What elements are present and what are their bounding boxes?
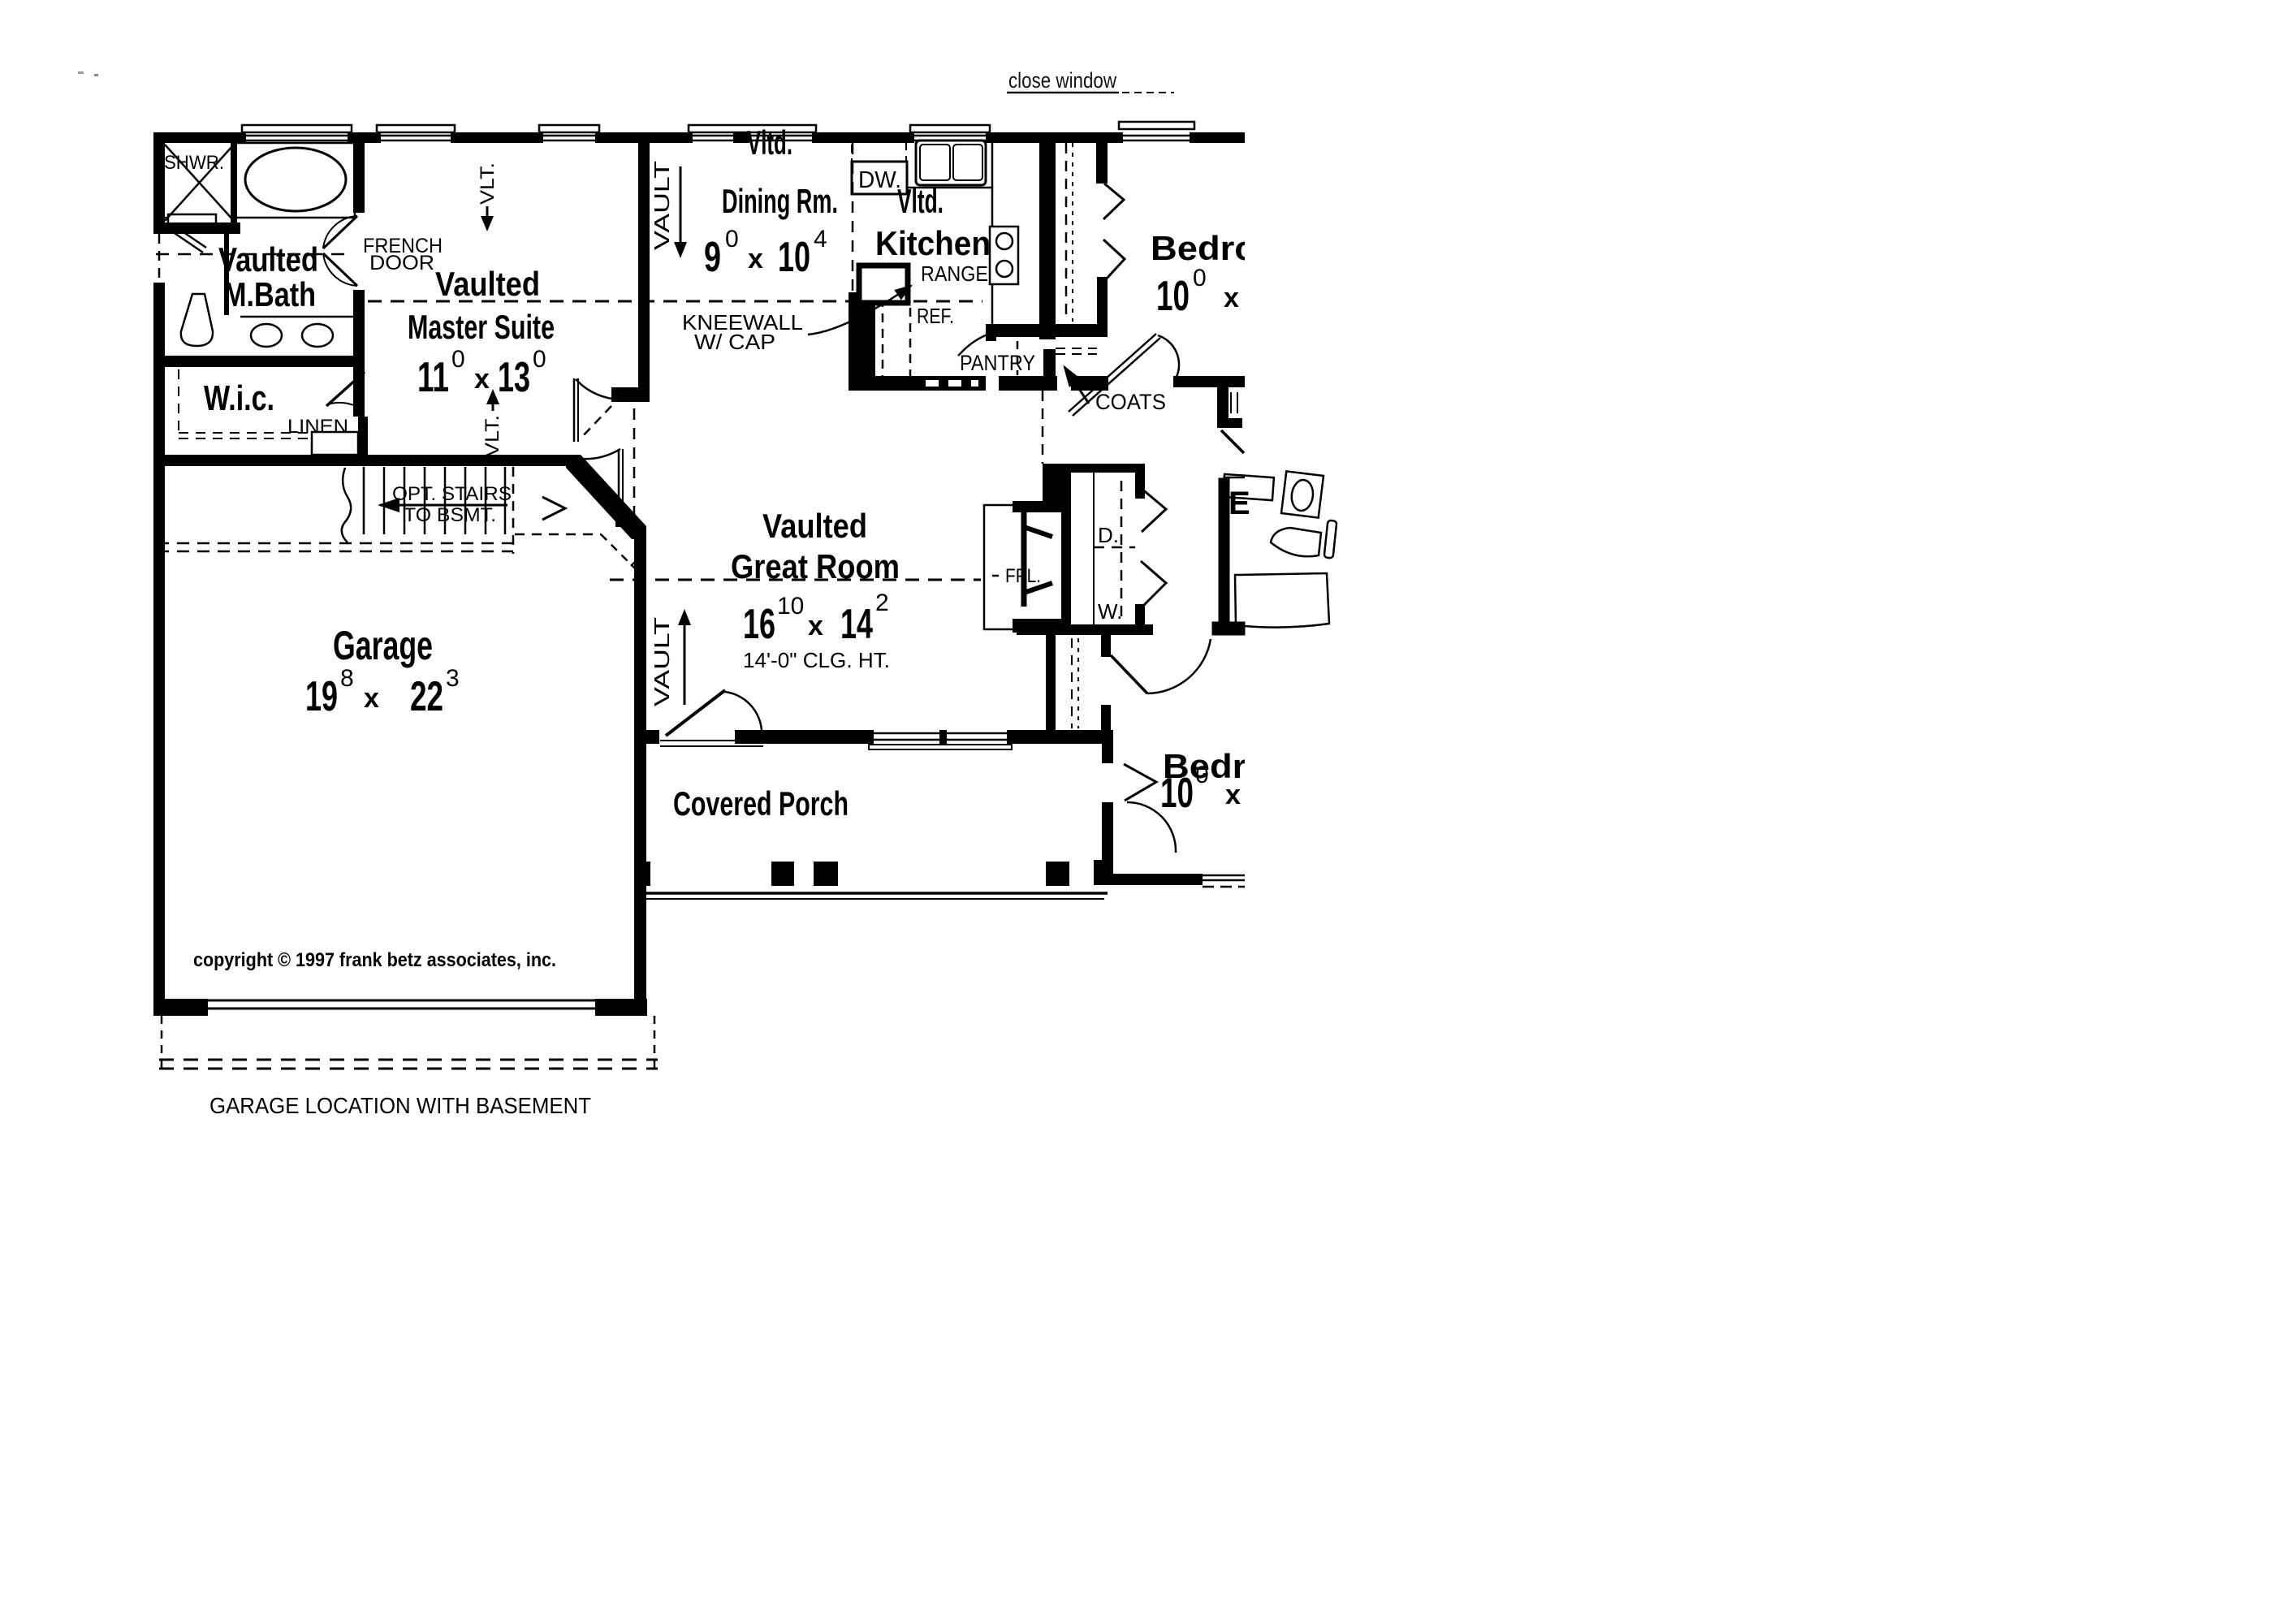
- svg-text:close window: close window: [1008, 68, 1116, 93]
- svg-text:M.Bath: M.Bath: [223, 275, 316, 313]
- svg-text:11: 11: [417, 354, 449, 401]
- svg-text:FPL.: FPL.: [1005, 565, 1041, 587]
- svg-text:TO BSMT.: TO BSMT.: [404, 504, 496, 526]
- svg-text:0: 0: [725, 226, 739, 253]
- svg-text:9: 9: [704, 234, 721, 281]
- svg-text:Vltd.: Vltd.: [897, 182, 944, 220]
- svg-text:W/ CAP: W/ CAP: [694, 330, 775, 354]
- svg-text:Vaulted: Vaulted: [218, 240, 318, 279]
- svg-text:x: x: [474, 364, 490, 395]
- svg-text:Great Room: Great Room: [731, 547, 900, 585]
- svg-text:14'-0" CLG. HT.: 14'-0" CLG. HT.: [743, 648, 890, 672]
- svg-text:PANTRY: PANTRY: [960, 351, 1035, 375]
- svg-text:DOOR: DOOR: [369, 252, 434, 274]
- svg-text:Dining Rm.: Dining Rm.: [722, 182, 838, 220]
- svg-text:2: 2: [875, 590, 889, 616]
- svg-text:x: x: [1225, 780, 1241, 810]
- svg-text:Vaulted: Vaulted: [435, 265, 540, 303]
- svg-text:D.: D.: [1098, 523, 1119, 547]
- svg-text:10: 10: [777, 593, 804, 620]
- svg-text:16: 16: [743, 601, 775, 648]
- svg-text:x: x: [1224, 283, 1239, 313]
- svg-text:SHWR.: SHWR.: [164, 152, 224, 174]
- svg-text:GARAGE LOCATION WITH BASEMENT: GARAGE LOCATION WITH BASEMENT: [209, 1093, 591, 1118]
- svg-text:REF.: REF.: [917, 304, 954, 328]
- svg-text:VLT.: VLT.: [481, 415, 503, 457]
- svg-text:Vaulted: Vaulted: [762, 507, 867, 545]
- svg-text:Garage: Garage: [333, 623, 433, 668]
- svg-text:13: 13: [498, 354, 530, 401]
- svg-text:DW.: DW.: [858, 167, 901, 193]
- svg-text:OPT. STAIRS: OPT. STAIRS: [392, 483, 512, 505]
- svg-text:x: x: [808, 611, 823, 641]
- svg-text:W.: W.: [1098, 599, 1122, 624]
- svg-text:W.i.c.: W.i.c.: [204, 378, 274, 418]
- svg-text:x: x: [748, 244, 763, 274]
- svg-text:Master Suite: Master Suite: [408, 308, 555, 346]
- svg-text:copyright © 1997 frank betz as: copyright © 1997 frank betz associates, …: [193, 949, 556, 971]
- svg-text:VAULT: VAULT: [650, 161, 674, 250]
- svg-text:0: 0: [1195, 762, 1209, 788]
- svg-text:10: 10: [1160, 770, 1194, 817]
- svg-text:4: 4: [814, 226, 827, 253]
- svg-text:10: 10: [778, 234, 810, 281]
- svg-text:E: E: [1229, 486, 1250, 521]
- svg-text:14: 14: [840, 601, 873, 648]
- svg-text:19: 19: [305, 673, 338, 720]
- svg-text:VLT.: VLT.: [477, 162, 499, 205]
- svg-text:VAULT: VAULT: [650, 617, 674, 706]
- svg-text:Vltd.: Vltd.: [747, 123, 792, 162]
- svg-text:Kitchen: Kitchen: [875, 224, 991, 262]
- svg-text:RANGE: RANGE: [921, 261, 988, 286]
- svg-text:10: 10: [1156, 273, 1190, 320]
- svg-text:x: x: [364, 683, 379, 714]
- svg-text:22: 22: [410, 673, 443, 720]
- svg-text:0: 0: [451, 346, 465, 373]
- svg-text:Covered Porch: Covered Porch: [673, 784, 849, 823]
- svg-text:0: 0: [1193, 265, 1207, 292]
- svg-text:8: 8: [340, 665, 354, 692]
- svg-text:0: 0: [533, 346, 546, 373]
- svg-text:3: 3: [446, 665, 460, 692]
- svg-text:LINEN: LINEN: [287, 416, 348, 438]
- svg-text:COATS: COATS: [1095, 390, 1166, 414]
